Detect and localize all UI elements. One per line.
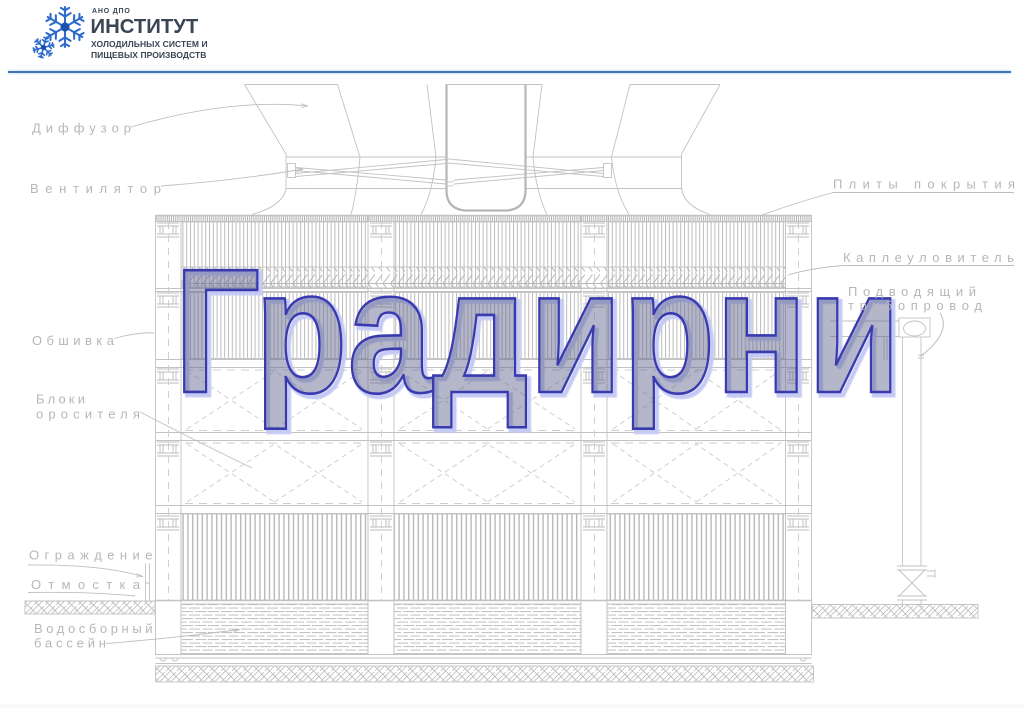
svg-text:Подводящий: Подводящий [848, 284, 982, 299]
svg-text:трубопровод: трубопровод [848, 298, 988, 313]
